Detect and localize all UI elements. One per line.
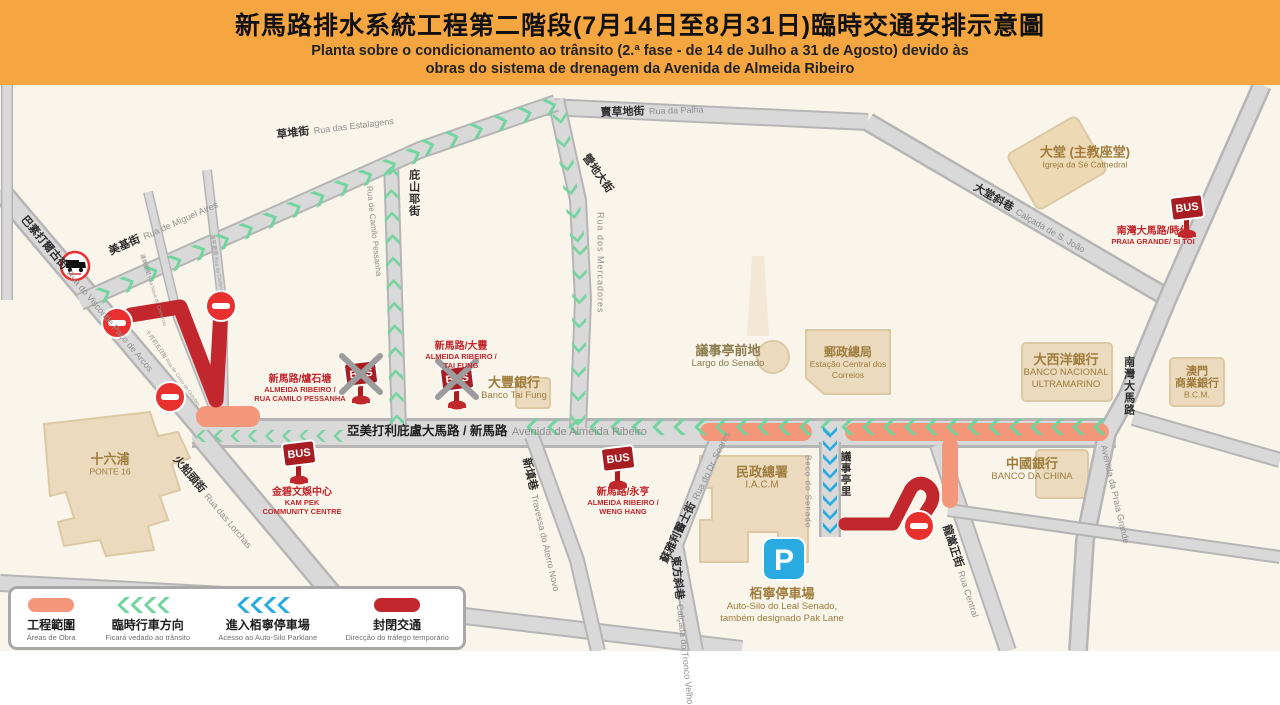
landmark-label-boc: 中國銀行BANCO DA CHINA [991,457,1072,483]
legend-item-work-area: 工程範圍 Áreas de Obra [25,595,77,642]
bus-stop-label-tai-fung: 新馬路/大豐ALMEIDA RIBEIRO /TAI FUNG [425,341,496,371]
page-subtitle-line2: obras do sistema de drenagem da Avenida … [0,60,1280,78]
parking-icon: P [763,538,805,580]
bus-stop-label-kam-pek: 金碧文娛中心KAM PEKCOMMUNITY CENTRE [262,487,341,517]
landmark-label-tai-fung: 大豐銀行Banco Tai Fung [481,376,547,402]
blue-chevrons-swatch [218,595,317,615]
svg-text:P: P [774,544,794,577]
traffic-map-page: 新馬路排水系統工程第二階段(7月14日至8月31日)臨時交通安排示意圖 Plan… [0,0,1280,651]
street-label-palha: 賣草地街 Rua da Palha [600,99,704,120]
bus-stop-closed-icon: BUS [342,356,380,405]
header-banner: 新馬路排水系統工程第二階段(7月14日至8月31日)臨時交通安排示意圖 Plan… [0,0,1280,85]
street-label-mercadores-pt: Rua dos Mercadores [592,212,610,314]
landmark-label-bnu: 大西洋銀行BANCO NACIONALULTRAMARINO [1024,353,1109,391]
legend-item-closed: 封閉交通 Direcção do tráfego temporário [345,595,448,642]
map-canvas: BUSBUSBUSBUSBUSP 草堆街 Rua das Estalagens … [0,85,1280,651]
landmark-label-bcm: 澳門商業銀行B.C.M. [1175,366,1219,401]
direction-chevron [144,597,157,613]
direction-chevron [157,597,170,613]
direction-chevron [237,597,250,613]
road-surface [1133,418,1280,460]
work-area-swatch [25,595,77,615]
direction-chevron [277,597,290,613]
landmark-label-post-office: 郵政總局Estação Central dosCorreios [810,346,887,380]
street-label-almeida-ribeiro: 亞美打利庇盧大馬路 / 新馬路 Avenida de Almeida Ribei… [347,422,647,440]
building-footprint [44,412,190,556]
road-surface [556,100,583,428]
green-chevrons-swatch [105,595,190,615]
street-label-beco-senado-zh: 議事亭里 [837,451,855,497]
road-surface [391,160,399,430]
bus-stop-label-camilo: 新馬路/爐石塘ALMEIDA RIBEIRO /RUA CAMILO PESSA… [254,374,345,404]
bus-stop-label-weng-hang: 新馬路/永亨ALMEIDA RIBEIRO /WENG HANG [587,487,658,517]
closed-road-swatch [345,595,448,615]
direction-chevron [117,597,130,613]
landmark-label-parking: 栢寧停車場Auto-Silo do Leal Senado,também des… [720,587,844,625]
landmark-label-iacm: 民政總署I.A.C.M [736,466,788,493]
direction-chevron [130,597,143,613]
no-entry-sign-icon [904,511,934,541]
street-label-beco-senado-pt: Beco do Senado [799,455,817,528]
page-subtitle-line1: Planta sobre o condicionamento ao trânsi… [0,42,1280,60]
road-surface [1168,85,1262,298]
landmark-label-ponte16: 十六浦PONTE 16 [89,453,130,478]
bus-stop-label-praia-grande: 南灣大馬路/時代PRAIA GRANDE/ SI TOI [1111,226,1194,246]
map-legend: 工程範圍 Áreas de Obra 臨時行車方向 Ficará vedado … [8,586,466,650]
street-label-pessanha-zh: 庇山耶街 [405,169,423,217]
no-entry-sign-icon [206,291,236,321]
road-surface [548,107,868,122]
bus-stop-icon: BUS [282,440,317,484]
bus-stop-icon: BUS [601,445,636,489]
direction-chevron [264,597,277,613]
senado-monument [747,256,769,336]
street-label-praia-grande-zh: 南灣大馬路 [1120,356,1138,416]
work-area [942,438,958,508]
work-area [196,406,260,427]
page-title: 新馬路排水系統工程第二階段(7月14日至8月31日)臨時交通安排示意圖 [0,0,1280,42]
landmark-label-largo-senado: 議事亭前地Largo do Senado [692,344,765,370]
legend-item-temp-direction: 臨時行車方向 Ficará vedado ao trânsito [105,595,190,642]
legend-item-parking-access: 進入栢寧停車場 Acesso ao Auto-Silo Parklane [218,595,317,642]
landmark-label-cathedral: 大堂 (主教座堂)Igreja da Sé Cathedral [1040,146,1130,171]
direction-chevron [250,597,263,613]
